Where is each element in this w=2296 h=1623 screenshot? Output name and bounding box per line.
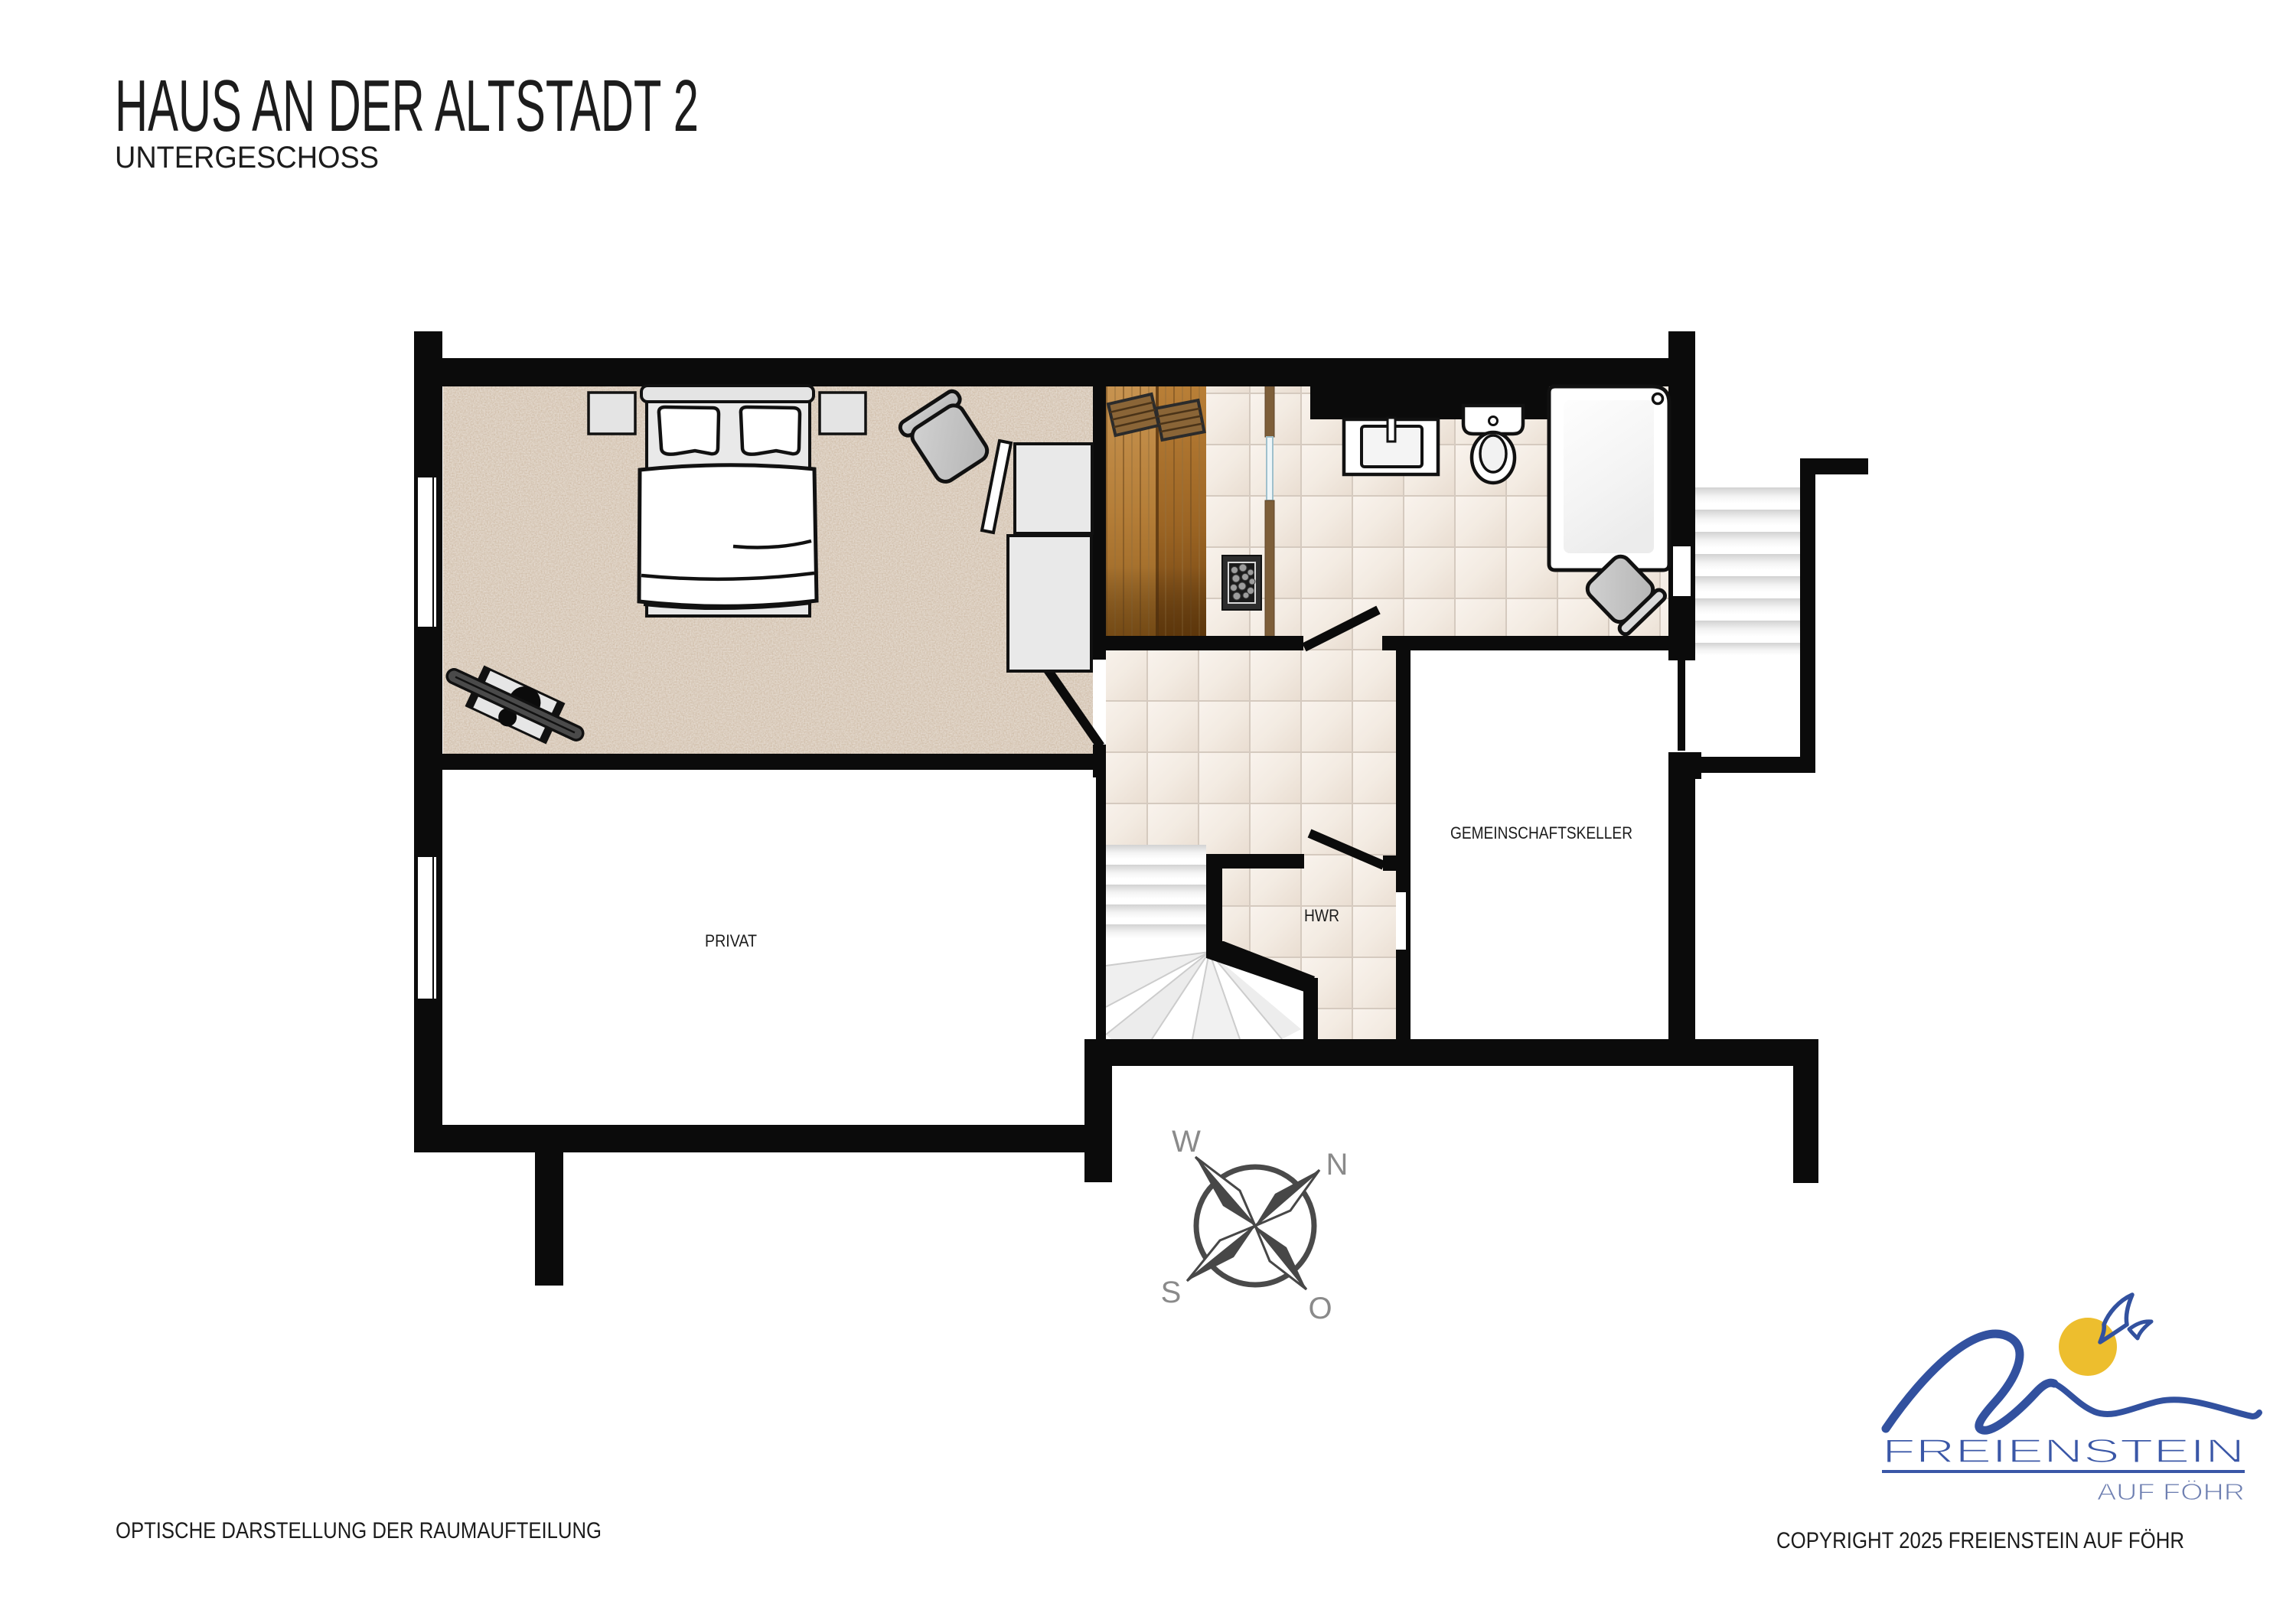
svg-text:COPYRIGHT 2025 FREIENSTEIN AUF: COPYRIGHT 2025 FREIENSTEIN AUF FÖHR <box>1776 1528 2184 1553</box>
svg-text:O: O <box>1308 1292 1332 1325</box>
svg-text:UNTERGESCHOSS: UNTERGESCHOSS <box>115 141 379 174</box>
svg-text:AUF FÖHR: AUF FÖHR <box>2097 1478 2245 1505</box>
svg-text:HWR: HWR <box>1304 906 1339 925</box>
svg-text:W: W <box>1172 1125 1201 1159</box>
svg-text:HAUS AN DER ALTSTADT 2: HAUS AN DER ALTSTADT 2 <box>115 65 699 147</box>
svg-text:S: S <box>1161 1276 1182 1309</box>
svg-text:PRIVAT: PRIVAT <box>705 931 757 950</box>
svg-text:GEMEINSCHAFTSKELLER: GEMEINSCHAFTSKELLER <box>1450 823 1632 842</box>
svg-text:N: N <box>1326 1148 1349 1181</box>
svg-text:OPTISCHE DARSTELLUNG DER RAUMA: OPTISCHE DARSTELLUNG DER RAUMAUFTEILUNG <box>116 1518 602 1543</box>
svg-text:FREIENSTEIN: FREIENSTEIN <box>1882 1432 2245 1470</box>
